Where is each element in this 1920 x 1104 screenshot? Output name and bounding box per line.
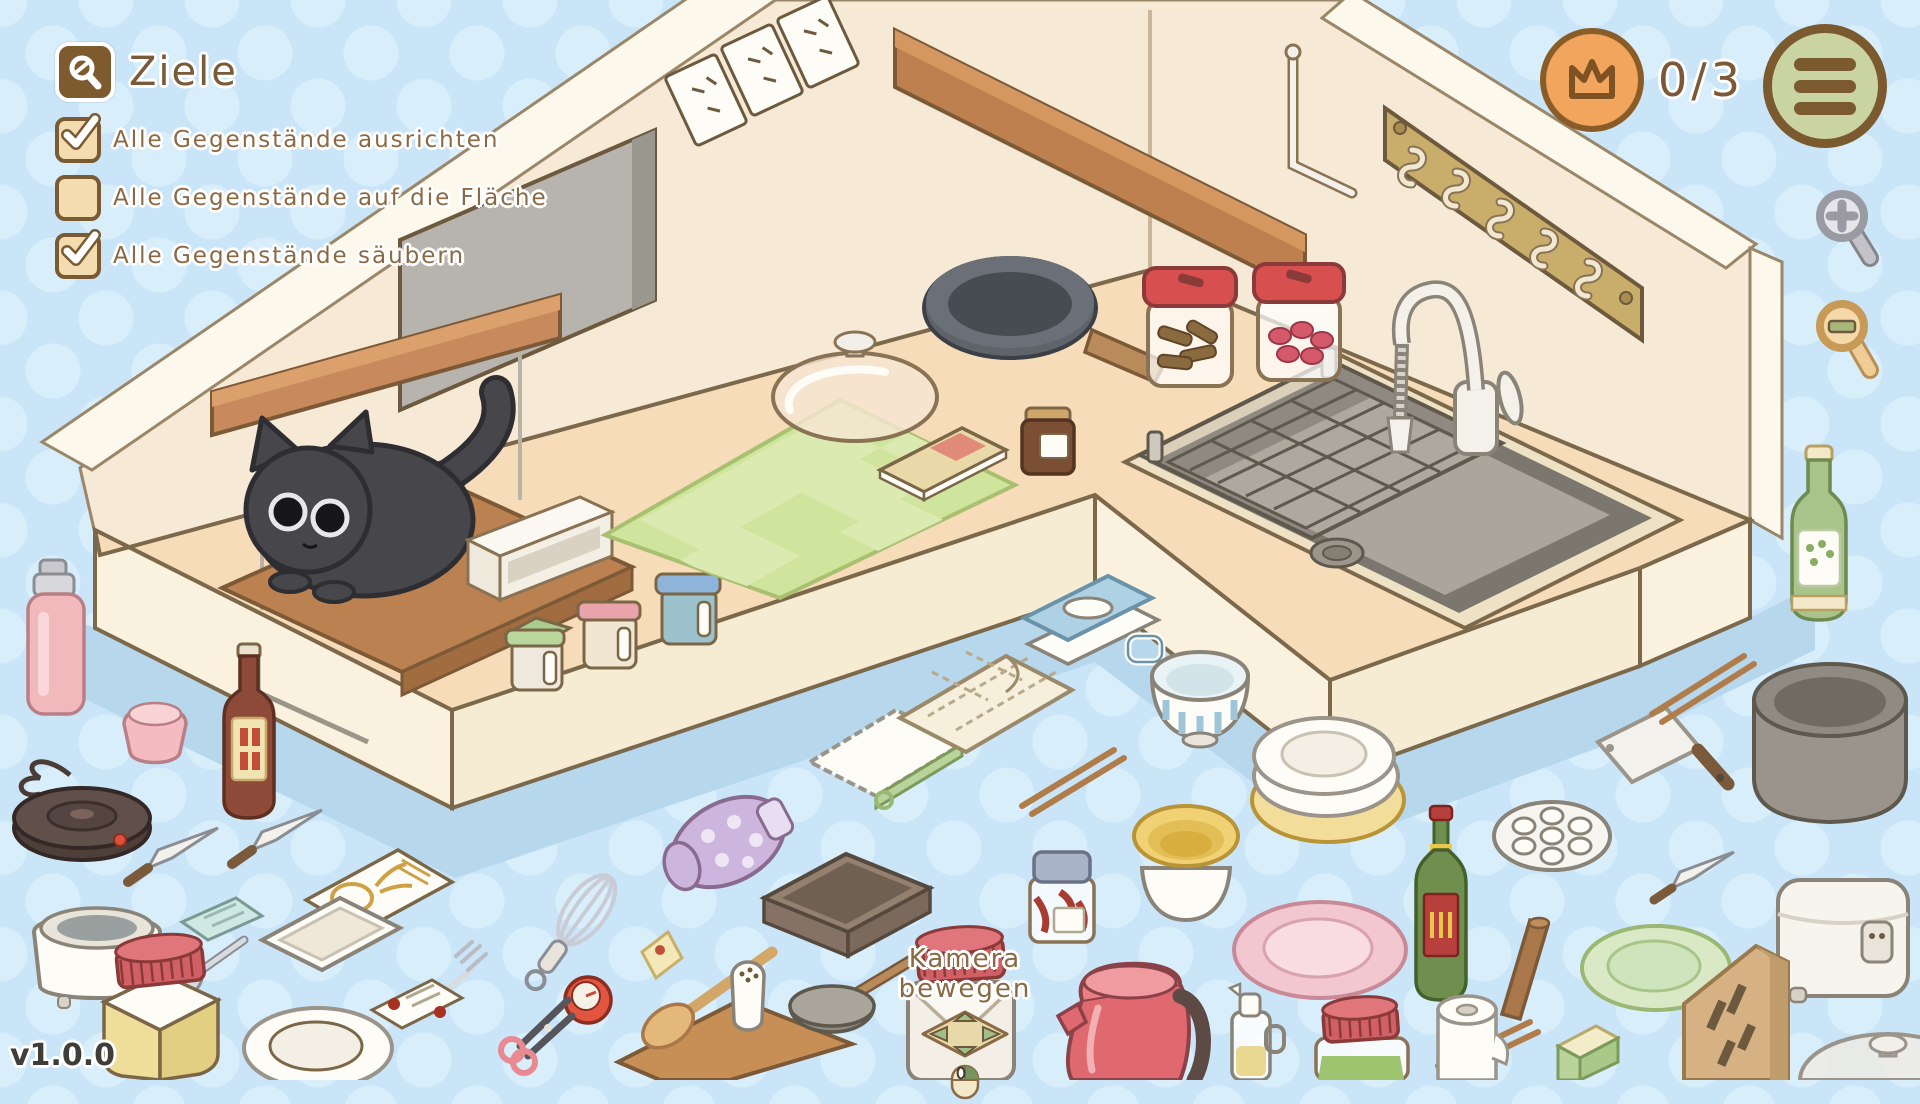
goal-checkbox-1 (55, 117, 101, 163)
whisk[interactable] (514, 866, 626, 1000)
green-jar[interactable] (1316, 994, 1408, 1080)
green-bottle[interactable] (1792, 446, 1846, 620)
wine-bottle[interactable] (1416, 806, 1466, 1000)
glass-lid-corner[interactable] (1800, 1034, 1920, 1080)
status-bar: 0/3 (1540, 28, 1744, 132)
menu-bar (1794, 58, 1856, 71)
plates-stack[interactable] (1252, 718, 1404, 842)
mustard-jar[interactable] (104, 931, 218, 1080)
yellow-note[interactable] (642, 932, 682, 978)
magnifier-slash-glyph (65, 52, 105, 92)
jar-cinnamon[interactable] (1144, 268, 1236, 386)
salt-shaker[interactable] (732, 962, 764, 1030)
wooden-roller[interactable] (1502, 918, 1549, 1019)
mouse-drag-icon (950, 1064, 980, 1100)
steamer-plate[interactable] (1494, 802, 1610, 870)
camera-hint-label: Kamera bewegen (850, 944, 1080, 1004)
camera-hint: Kamera bewegen (850, 944, 1080, 1104)
paper-roll[interactable] (1438, 996, 1508, 1080)
hot-plate[interactable] (14, 762, 150, 860)
goal-checkbox-3 (55, 233, 101, 279)
canister-blue[interactable] (656, 574, 720, 644)
goal-row-1: Alle Gegenstände ausrichten (55, 120, 548, 160)
goals-title-row: Ziele (55, 42, 548, 102)
magnifier-minus-icon[interactable] (1812, 296, 1884, 386)
progress-counter: 0/3 (1658, 53, 1744, 107)
canister-pink[interactable] (578, 602, 640, 668)
oil-dispenser[interactable] (1230, 984, 1284, 1080)
goals-title: Ziele (129, 49, 238, 95)
menu-bar (1794, 80, 1856, 93)
magnifier-plus-icon[interactable] (1812, 188, 1884, 274)
jar-candy[interactable] (1254, 264, 1344, 380)
big-pot[interactable] (1754, 664, 1906, 822)
paring-knife-right[interactable] (1654, 852, 1734, 900)
rice-cooker[interactable] (1778, 880, 1908, 1002)
goals-panel: Ziele Alle Gegenstände ausrichten Alle G… (55, 42, 548, 276)
menu-bar (1794, 102, 1856, 115)
goal-label-2: Alle Gegenstände auf die Fläche (113, 185, 548, 211)
yellow-bowl-stack[interactable] (1134, 806, 1238, 920)
arrow-pad-icon (915, 1008, 1015, 1060)
goals-magnifier-icon[interactable] (55, 42, 115, 102)
pink-plate[interactable] (1234, 902, 1406, 998)
hamburger-menu-icon[interactable] (1763, 24, 1887, 148)
jam-jar[interactable] (1030, 852, 1094, 942)
sponge[interactable] (1558, 1026, 1618, 1080)
crown-glyph (1564, 56, 1620, 104)
version-label: v1.0.0 (10, 1038, 115, 1073)
white-plate[interactable] (244, 1008, 392, 1080)
goal-label-1: Alle Gegenstände ausrichten (113, 127, 499, 153)
brown-baking-pan[interactable] (764, 854, 930, 956)
teal-card[interactable] (182, 898, 262, 940)
goal-row-2: Alle Gegenstände auf die Fläche (55, 178, 548, 218)
pink-cup[interactable] (124, 703, 186, 763)
brown-spice-jar[interactable] (1022, 408, 1074, 474)
crown-icon (1540, 28, 1644, 132)
goal-row-3: Alle Gegenstände säubern (55, 236, 548, 276)
goal-label-3: Alle Gegenstände säubern (113, 243, 465, 269)
scissors[interactable] (501, 1000, 572, 1073)
canister-green[interactable] (506, 618, 570, 690)
goal-checkbox-2 (55, 175, 101, 221)
chopsticks-1[interactable] (1022, 750, 1124, 814)
zoom-controls (1812, 188, 1884, 386)
game-screen: { "goals_panel": { "icon": "goals-magnif… (0, 0, 1920, 1080)
